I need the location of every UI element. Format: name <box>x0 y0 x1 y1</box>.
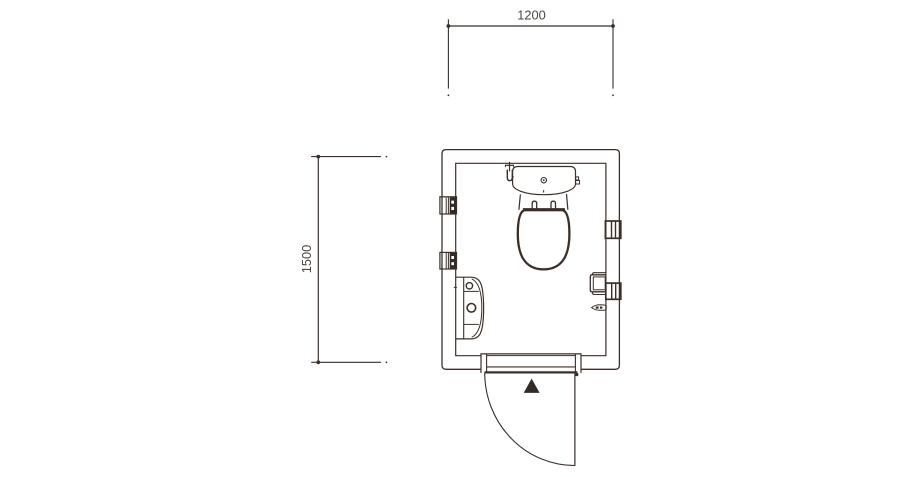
svg-text:1200: 1200 <box>517 8 545 23</box>
svg-text:1500: 1500 <box>299 245 314 273</box>
